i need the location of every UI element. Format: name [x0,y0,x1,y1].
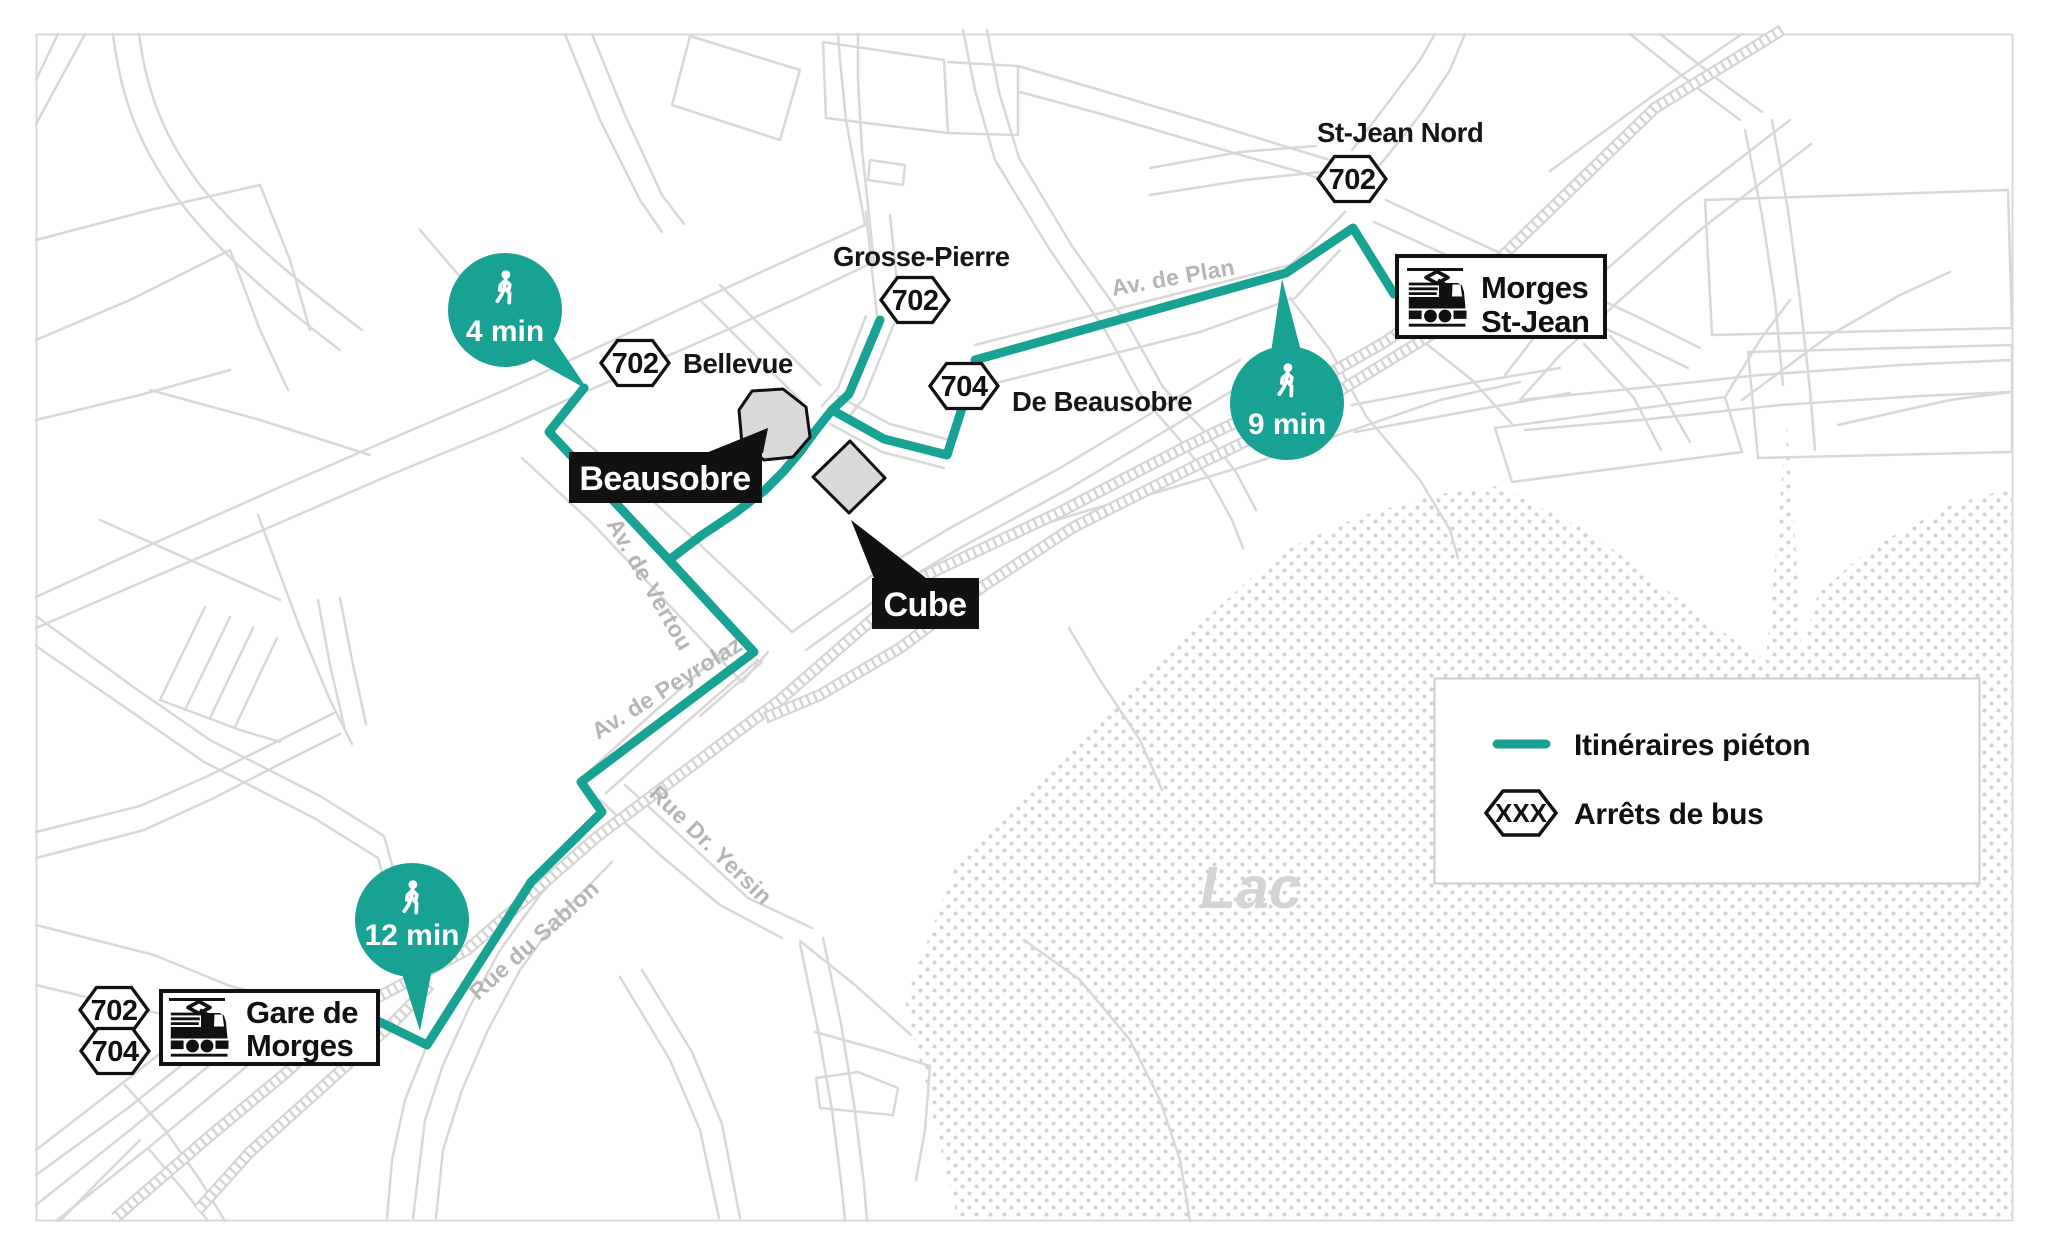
svg-text:De Beausobre: De Beausobre [1012,386,1192,417]
svg-text:St-Jean: St-Jean [1481,304,1589,339]
svg-text:Beausobre: Beausobre [579,460,750,498]
svg-text:Arrêts de bus: Arrêts de bus [1574,798,1764,831]
svg-text:9 min: 9 min [1248,408,1326,441]
svg-text:St-Jean Nord: St-Jean Nord [1317,117,1483,148]
svg-text:Gare de: Gare de [246,995,358,1030]
svg-text:Itinéraires piéton: Itinéraires piéton [1574,729,1810,762]
svg-text:Lac: Lac [1200,855,1302,921]
svg-text:704: 704 [92,1036,139,1068]
svg-text:702: 702 [612,348,659,380]
svg-text:Bellevue: Bellevue [683,348,793,379]
svg-text:Grosse-Pierre: Grosse-Pierre [833,241,1010,272]
svg-text:702: 702 [892,285,939,317]
svg-text:Morges: Morges [246,1028,353,1063]
svg-text:XXX: XXX [1495,798,1548,828]
svg-text:12 min: 12 min [364,919,459,952]
svg-text:Cube: Cube [884,586,967,624]
svg-text:Morges: Morges [1481,270,1588,305]
svg-text:702: 702 [1329,164,1376,196]
svg-text:704: 704 [941,371,988,403]
svg-text:4 min: 4 min [466,315,544,348]
svg-text:702: 702 [91,995,138,1027]
